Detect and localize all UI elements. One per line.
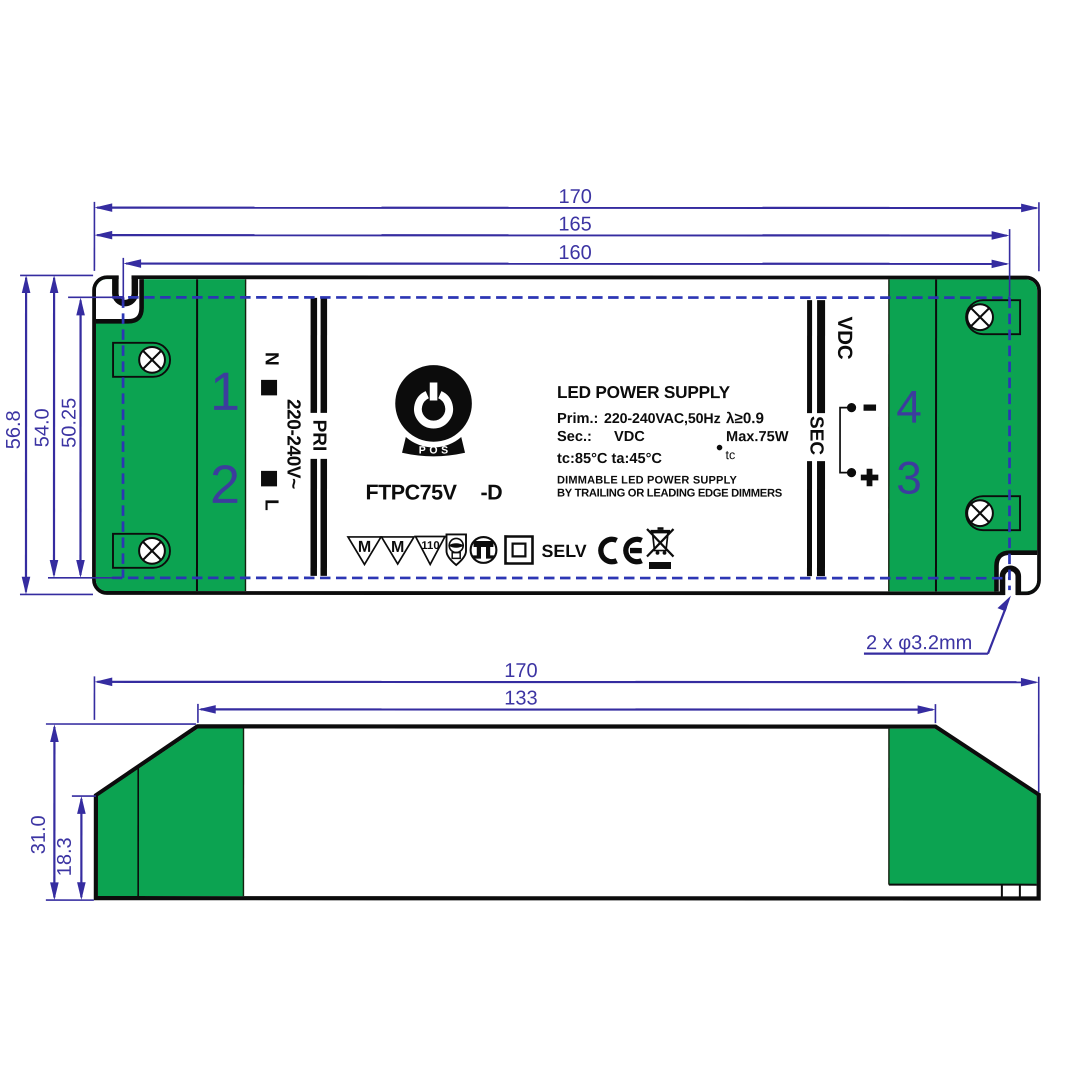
svg-text:POS: POS bbox=[419, 444, 452, 456]
svg-text:4: 4 bbox=[896, 381, 922, 433]
svg-text:31.0: 31.0 bbox=[28, 815, 50, 854]
svg-text:56.8: 56.8 bbox=[3, 410, 25, 449]
svg-text:170: 170 bbox=[558, 186, 591, 208]
svg-text:VDC: VDC bbox=[833, 316, 856, 359]
svg-text:170: 170 bbox=[504, 660, 537, 682]
svg-text:165: 165 bbox=[558, 214, 591, 236]
svg-text:SEC: SEC bbox=[806, 416, 827, 455]
svg-text:FTPC75V: FTPC75V bbox=[366, 480, 458, 504]
svg-text:220-240V~: 220-240V~ bbox=[283, 399, 304, 489]
svg-text:220-240VAC,50Hz: 220-240VAC,50Hz bbox=[604, 411, 721, 427]
svg-text:3: 3 bbox=[896, 452, 922, 504]
svg-text:Prim.:: Prim.: bbox=[557, 411, 598, 427]
svg-text:110: 110 bbox=[421, 540, 439, 552]
svg-text:54.0: 54.0 bbox=[32, 408, 54, 447]
svg-text:L: L bbox=[261, 499, 282, 511]
svg-text:LED POWER SUPPLY: LED POWER SUPPLY bbox=[557, 382, 731, 402]
svg-text:18.3: 18.3 bbox=[54, 837, 76, 876]
svg-text:λ≥0.9: λ≥0.9 bbox=[726, 410, 764, 427]
svg-text:M: M bbox=[391, 539, 404, 556]
svg-text:160: 160 bbox=[558, 242, 591, 264]
svg-text:1: 1 bbox=[210, 362, 240, 422]
svg-text:PRI: PRI bbox=[308, 420, 329, 452]
svg-text:BY TRAILING OR LEADING EDGE DI: BY TRAILING OR LEADING EDGE DIMMERS bbox=[557, 488, 783, 500]
svg-text:133: 133 bbox=[504, 687, 537, 709]
svg-text:DIMMABLE LED POWER SUPPLY: DIMMABLE LED POWER SUPPLY bbox=[557, 475, 737, 487]
svg-text:N: N bbox=[261, 352, 282, 366]
svg-text:M: M bbox=[358, 539, 371, 556]
svg-text:Max.75W: Max.75W bbox=[726, 429, 789, 445]
svg-text:VDC: VDC bbox=[614, 429, 645, 445]
svg-text:-D: -D bbox=[481, 480, 503, 504]
svg-text:2: 2 bbox=[210, 455, 240, 515]
svg-text:SELV: SELV bbox=[541, 541, 586, 561]
svg-text:2 x φ3.2mm: 2 x φ3.2mm bbox=[866, 632, 972, 654]
svg-text:tc:85°C ta:45°C: tc:85°C ta:45°C bbox=[557, 451, 662, 467]
svg-text:tc: tc bbox=[726, 448, 736, 462]
svg-text:50.25: 50.25 bbox=[59, 398, 81, 448]
svg-text:Sec.:: Sec.: bbox=[557, 429, 592, 445]
